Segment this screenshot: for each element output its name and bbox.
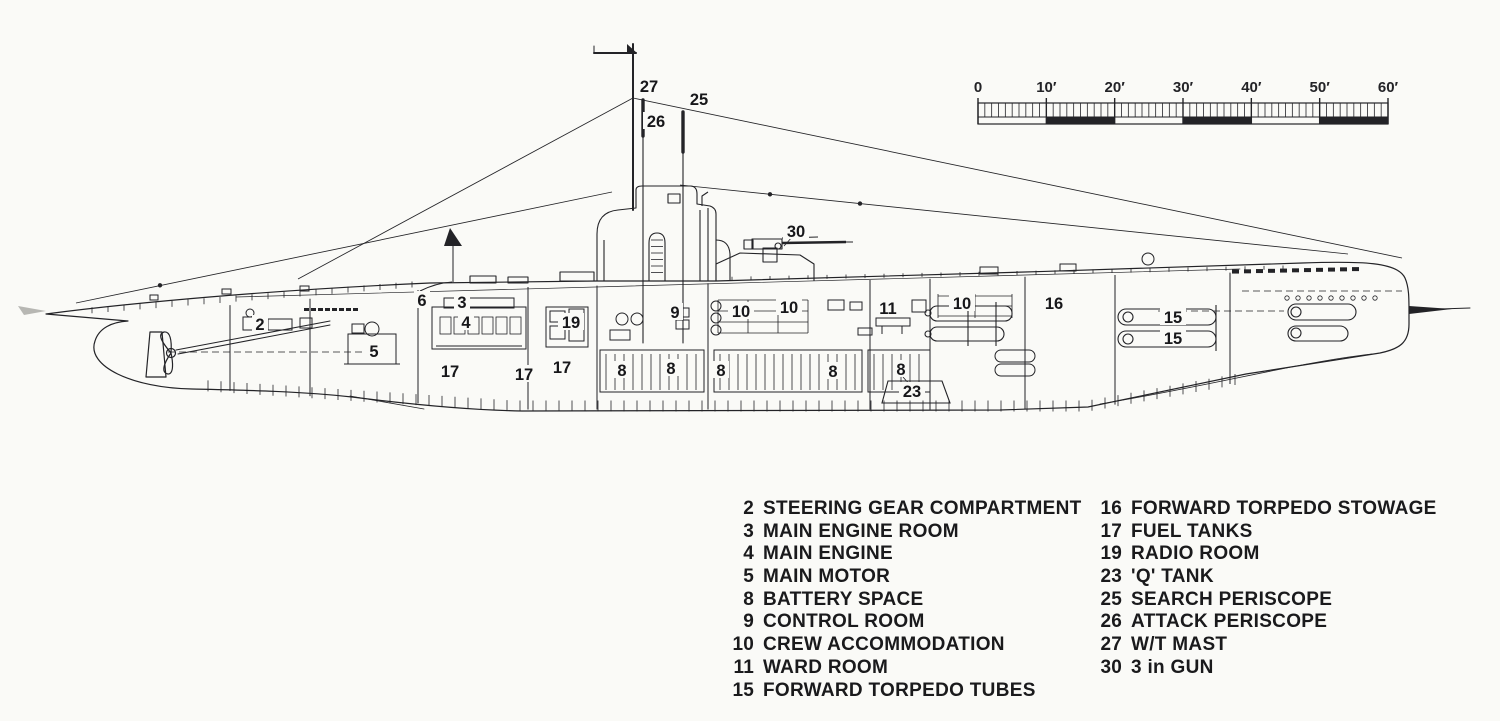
callout-number: 25 <box>690 91 708 109</box>
callout-number: 6 <box>417 292 426 310</box>
legend-item-number: 17 <box>1094 521 1122 544</box>
legend-item: 4MAIN ENGINE <box>726 543 1086 566</box>
legend-item-number: 4 <box>726 543 754 566</box>
callout-number: 8 <box>666 360 675 378</box>
callout-number: 11 <box>879 300 896 318</box>
callout-number: 5 <box>369 343 378 361</box>
legend-item-label: 3 in GUN <box>1131 657 1214 680</box>
legend-item-number: 5 <box>726 566 754 589</box>
callout-number: 3 <box>457 294 466 312</box>
legend-item: 8BATTERY SPACE <box>726 589 1086 612</box>
legend-item: 23'Q' TANK <box>1094 566 1474 589</box>
legend-item-number: 9 <box>726 611 754 634</box>
scale-tick-label: 50′ <box>1310 79 1331 96</box>
callout-number: 10 <box>953 295 971 313</box>
legend-item-number: 30 <box>1094 657 1122 680</box>
legend-item: 303 in GUN <box>1094 657 1474 680</box>
rigging-wires <box>76 98 1402 303</box>
callout-number: 23 <box>903 383 921 401</box>
callout-number: 17 <box>441 363 459 381</box>
legend-item-number: 23 <box>1094 566 1122 589</box>
wire-insulator <box>158 283 162 287</box>
legend-item: 2STEERING GEAR COMPARTMENT <box>726 498 1086 521</box>
legend-item-number: 25 <box>1094 589 1122 612</box>
legend-item: 5MAIN MOTOR <box>726 566 1086 589</box>
legend-item: 15FORWARD TORPEDO TUBES <box>726 680 1086 703</box>
flag-marker <box>444 228 462 246</box>
legend-column-left: 2STEERING GEAR COMPARTMENT3MAIN ENGINE R… <box>726 498 1086 702</box>
scale-tick-label: 20′ <box>1105 79 1126 96</box>
scale-tick-label: 60′ <box>1378 79 1399 96</box>
callout-number: 19 <box>562 314 580 332</box>
legend-item-number: 8 <box>726 589 754 612</box>
page: 010′20′30′40′50′60′ 27252630263451991010… <box>0 0 1500 721</box>
legend-item-number: 26 <box>1094 611 1122 634</box>
callout-number: 17 <box>515 366 533 384</box>
legend-item-label: SEARCH PERISCOPE <box>1131 589 1332 612</box>
callout-number: 4 <box>461 314 471 332</box>
interior-machinery <box>150 253 1154 376</box>
legend-item-label: W/T MAST <box>1131 634 1227 657</box>
wardroom-table <box>876 318 910 326</box>
legend-item-number: 10 <box>726 634 754 657</box>
legend-item-number: 11 <box>726 657 754 680</box>
callout-number: 8 <box>716 362 725 380</box>
legend-item-number: 15 <box>726 680 754 703</box>
hull-outline <box>18 262 1470 411</box>
legend-item-number: 27 <box>1094 634 1122 657</box>
bow-tube <box>1288 304 1356 320</box>
legend-item-label: RADIO ROOM <box>1131 543 1260 566</box>
reload-torpedo <box>930 327 1004 341</box>
callout-number: 26 <box>647 113 665 131</box>
legend-item-label: ATTACK PERISCOPE <box>1131 611 1327 634</box>
callout-number: 8 <box>896 361 905 379</box>
legend-item-label: FUEL TANKS <box>1131 521 1253 544</box>
legend-item-number: 3 <box>726 521 754 544</box>
rudder <box>146 332 166 377</box>
legend-item-label: WARD ROOM <box>763 657 888 680</box>
wire-insulator <box>858 201 862 205</box>
callout-number: 10 <box>780 299 798 317</box>
legend-item: 3MAIN ENGINE ROOM <box>726 521 1086 544</box>
legend-item-number: 16 <box>1094 498 1122 521</box>
deck-gun <box>716 236 853 281</box>
callout-number: 30 <box>787 223 805 241</box>
scale-bar: 010′20′30′40′50′60′ <box>974 79 1399 124</box>
legend-item: 25SEARCH PERISCOPE <box>1094 589 1474 612</box>
legend-item-label: FORWARD TORPEDO STOWAGE <box>1131 498 1437 521</box>
scale-tick-label: 40′ <box>1241 79 1262 96</box>
callout-number: 17 <box>553 359 571 377</box>
callout-number: 8 <box>617 362 626 380</box>
legend-item: 17FUEL TANKS <box>1094 521 1474 544</box>
legend-column-right: 16FORWARD TORPEDO STOWAGE17FUEL TANKS19R… <box>1094 498 1474 680</box>
scale-tick-label: 10′ <box>1036 79 1057 96</box>
legend-item: 9CONTROL ROOM <box>726 611 1086 634</box>
legend-item-label: CREW ACCOMMODATION <box>763 634 1005 657</box>
legend-item: 11WARD ROOM <box>726 657 1086 680</box>
legend-item-label: FORWARD TORPEDO TUBES <box>763 680 1036 703</box>
legend-item-label: 'Q' TANK <box>1131 566 1214 589</box>
scale-tick-label: 30′ <box>1173 79 1194 96</box>
legend-item-label: MAIN ENGINE <box>763 543 893 566</box>
callout-number: 15 <box>1164 330 1182 348</box>
callout-number: 27 <box>640 78 658 96</box>
legend-item-label: CONTROL ROOM <box>763 611 925 634</box>
gun-barrel <box>782 242 846 243</box>
callout-number: 15 <box>1164 309 1182 327</box>
scale-tick-label: 0 <box>974 79 982 96</box>
frames-bulkheads-batteries <box>92 240 1377 412</box>
legend-item-number: 2 <box>726 498 754 521</box>
legend-item: 27W/T MAST <box>1094 634 1474 657</box>
wire-insulator <box>768 192 772 196</box>
callout-layer: 2725263026345199101011101615151717178888… <box>252 77 1186 401</box>
legend-item-label: BATTERY SPACE <box>763 589 924 612</box>
callout-number: 8 <box>828 363 837 381</box>
torpedo-tubes-and-stowage <box>882 302 1356 403</box>
callout-number: 10 <box>732 303 750 321</box>
legend-item: 16FORWARD TORPEDO STOWAGE <box>1094 498 1474 521</box>
legend-item: 19RADIO ROOM <box>1094 543 1474 566</box>
callout-number: 2 <box>255 316 264 334</box>
legend-item-label: MAIN ENGINE ROOM <box>763 521 959 544</box>
callout-number: 9 <box>670 304 679 322</box>
submarine-cutaway-diagram: 010′20′30′40′50′60′ 27252630263451991010… <box>0 0 1500 470</box>
legend-item-label: STEERING GEAR COMPARTMENT <box>763 498 1082 521</box>
stern-plane <box>18 306 46 315</box>
callout-number: 16 <box>1045 295 1063 313</box>
legend-item: 10CREW ACCOMMODATION <box>726 634 1086 657</box>
legend-item: 26ATTACK PERISCOPE <box>1094 611 1474 634</box>
legend-item-number: 19 <box>1094 543 1122 566</box>
legend-item-label: MAIN MOTOR <box>763 566 890 589</box>
